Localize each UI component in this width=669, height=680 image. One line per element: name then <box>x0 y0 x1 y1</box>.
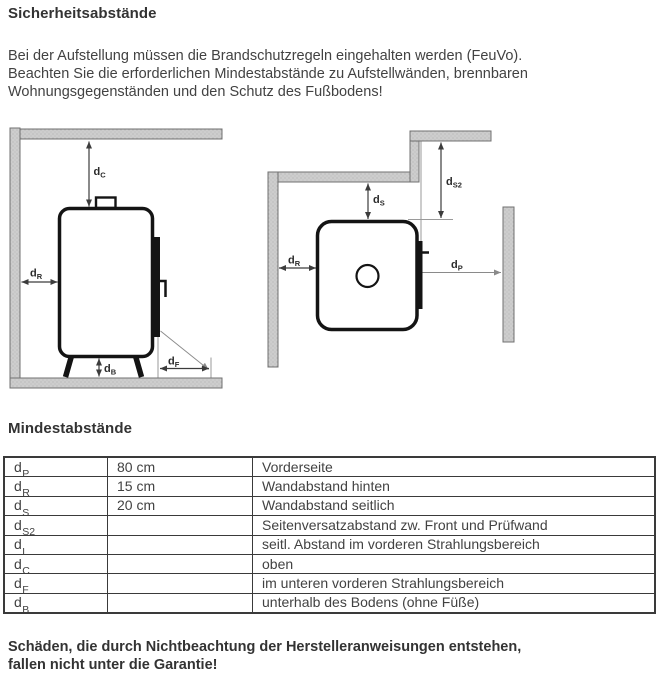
table-row: dB unterhalb des Bodens (ohne Füße) <box>4 593 655 613</box>
back-wall-top-view <box>268 172 418 182</box>
stove-body-side <box>60 209 153 357</box>
distance-symbol-cell: dP <box>4 457 108 477</box>
page-title: Sicherheitsabstände <box>8 5 157 22</box>
section-title-mindestabstaende: Mindestabstände <box>8 420 132 437</box>
label-dc: dC <box>94 166 107 180</box>
offset-wall <box>410 131 491 141</box>
distance-description-cell: Seitenversatzabstand zw. Front und Prüfw… <box>253 516 656 535</box>
distance-symbol-cell: dS <box>4 496 108 515</box>
stove-door-top <box>416 241 423 309</box>
label-ds: dS <box>373 194 385 208</box>
test-wall-pruefwand <box>503 207 514 342</box>
table-row: dR 15 cm Wandabstand hinten <box>4 477 655 496</box>
intro-line: Beachten Sie die erforderlichen Mindesta… <box>8 65 528 83</box>
label-df: dF <box>168 356 180 370</box>
distance-symbol-cell: dB <box>4 593 108 613</box>
side-wall-top-view <box>268 172 278 367</box>
label-dp: dP <box>451 259 463 273</box>
ceiling <box>20 129 222 139</box>
stove-leg-right <box>136 356 142 377</box>
distance-symbol-cell: dC <box>4 554 108 573</box>
label-db: dB <box>104 363 117 377</box>
table-row: dF im unteren vorderen Strahlungsbereich <box>4 574 655 593</box>
label-dr: dR <box>30 268 43 282</box>
minimum-distances-table: dP 80 cm Vorderseite dR 15 cm Wandabstan… <box>3 456 656 614</box>
top-view-diagram: dS dS2 dR dP <box>268 131 514 367</box>
distance-symbol-cell: dS2 <box>4 516 108 535</box>
stove-door-side <box>151 237 160 337</box>
manual-page: Sicherheitsabstände Bei der Aufstellung … <box>0 0 669 680</box>
distance-description-cell: oben <box>253 554 656 573</box>
label-dr2: dR <box>288 255 301 269</box>
distance-value-cell: 20 cm <box>108 496 253 515</box>
distance-value-cell <box>108 535 253 554</box>
warning-line: fallen nicht unter die Garantie! <box>8 656 521 674</box>
table-row: dS2 Seitenversatzabstand zw. Front und P… <box>4 516 655 535</box>
distance-description-cell: Wandabstand hinten <box>253 477 656 496</box>
table-row: dS 20 cm Wandabstand seitlich <box>4 496 655 515</box>
distance-value-cell <box>108 554 253 573</box>
distance-value-cell: 80 cm <box>108 457 253 477</box>
distance-description-cell: im unteren vorderen Strahlungsbereich <box>253 574 656 593</box>
table-row: dC oben <box>4 554 655 573</box>
table-row: dL seitl. Abstand im vorderen Strahlungs… <box>4 535 655 554</box>
intro-line: Wohnungsgegenständen und den Schutz des … <box>8 83 528 101</box>
distance-description-cell: Vorderseite <box>253 457 656 477</box>
label-ds2: dS2 <box>446 176 462 190</box>
warranty-warning: Schäden, die durch Nichtbeachtung der He… <box>8 638 521 674</box>
distance-description-cell: unterhalb des Bodens (ohne Füße) <box>253 593 656 613</box>
stove-leg-left <box>66 356 72 377</box>
door-handle <box>160 281 166 297</box>
distance-description-cell: seitl. Abstand im vorderen Strahlungsber… <box>253 535 656 554</box>
distance-value-cell: 15 cm <box>108 477 253 496</box>
flue-pipe-circle <box>357 265 379 287</box>
intro-line: Bei der Aufstellung müssen die Brandschu… <box>8 47 528 65</box>
table-row: dP 80 cm Vorderseite <box>4 457 655 477</box>
safety-distance-diagrams: dC dR dB dF dS dS2 dR dP <box>0 125 669 395</box>
distance-value-cell <box>108 516 253 535</box>
floor <box>10 378 222 388</box>
warning-line: Schäden, die durch Nichtbeachtung der He… <box>8 638 521 656</box>
rear-wall <box>10 128 20 378</box>
intro-paragraph: Bei der Aufstellung müssen die Brandschu… <box>8 47 528 101</box>
distance-value-cell <box>108 593 253 613</box>
distance-symbol-cell: dR <box>4 477 108 496</box>
distance-symbol-cell: dF <box>4 574 108 593</box>
side-view-diagram: dC dR dB dF <box>10 128 222 388</box>
distance-description-cell: Wandabstand seitlich <box>253 496 656 515</box>
distance-value-cell <box>108 574 253 593</box>
distance-symbol-cell: dL <box>4 535 108 554</box>
stove-flue-collar <box>96 198 116 209</box>
